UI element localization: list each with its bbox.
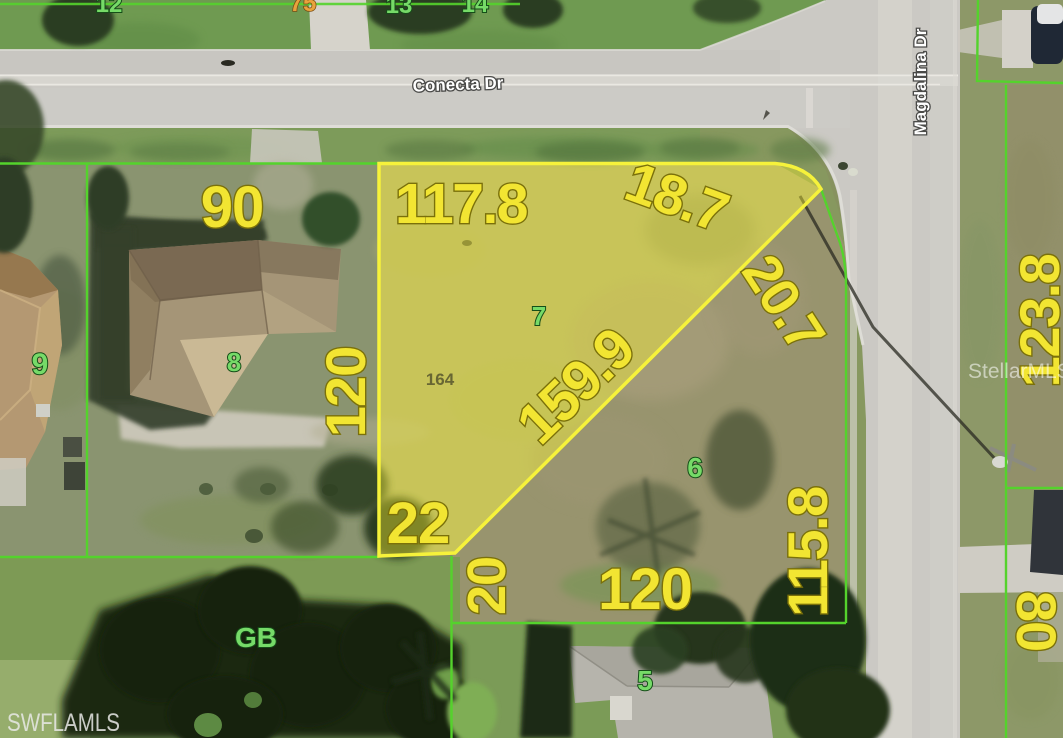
svg-text:Conecta Dr: Conecta Dr <box>412 73 504 95</box>
svg-text:80: 80 <box>1005 591 1063 651</box>
svg-text:20: 20 <box>457 557 517 615</box>
svg-text:6: 6 <box>687 452 703 483</box>
svg-text:StellarMLS: StellarMLS <box>968 360 1063 383</box>
svg-text:GB: GB <box>235 622 277 653</box>
svg-text:120: 120 <box>598 557 692 622</box>
svg-text:5: 5 <box>637 665 653 696</box>
svg-text:120: 120 <box>314 347 377 437</box>
svg-text:90: 90 <box>201 175 264 240</box>
svg-text:9: 9 <box>32 348 49 381</box>
svg-text:13: 13 <box>386 0 413 19</box>
svg-text:SWFLAMLS: SWFLAMLS <box>7 709 120 737</box>
svg-text:12: 12 <box>96 0 123 18</box>
svg-text:8: 8 <box>227 347 241 377</box>
svg-text:Magdalina Dr: Magdalina Dr <box>911 28 930 135</box>
svg-text:75: 75 <box>290 0 317 17</box>
svg-text:7: 7 <box>532 301 546 331</box>
svg-text:14: 14 <box>462 0 489 18</box>
svg-text:164: 164 <box>426 370 455 389</box>
svg-text:117.8: 117.8 <box>395 172 527 236</box>
svg-text:22: 22 <box>387 491 450 556</box>
svg-text:115.8: 115.8 <box>776 487 839 617</box>
